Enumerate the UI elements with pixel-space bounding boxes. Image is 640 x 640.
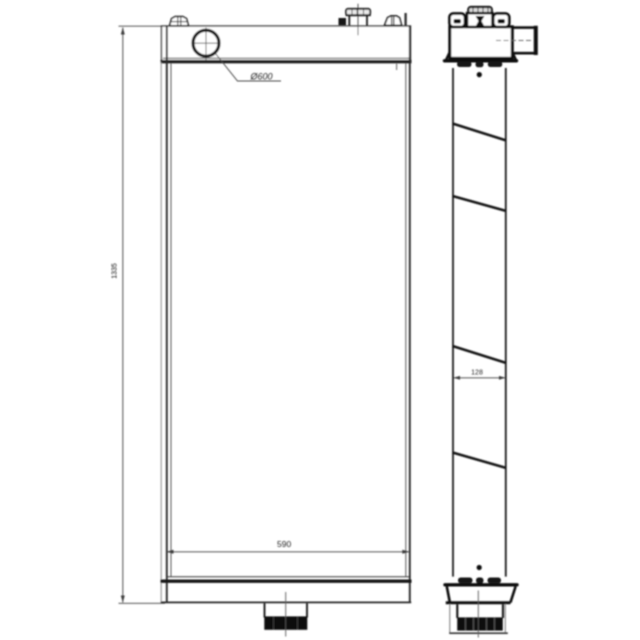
svg-text:128: 128 xyxy=(471,370,483,377)
svg-text:Ø600: Ø600 xyxy=(250,72,273,82)
svg-text:590: 590 xyxy=(277,539,291,549)
svg-text:1335: 1335 xyxy=(112,263,119,279)
